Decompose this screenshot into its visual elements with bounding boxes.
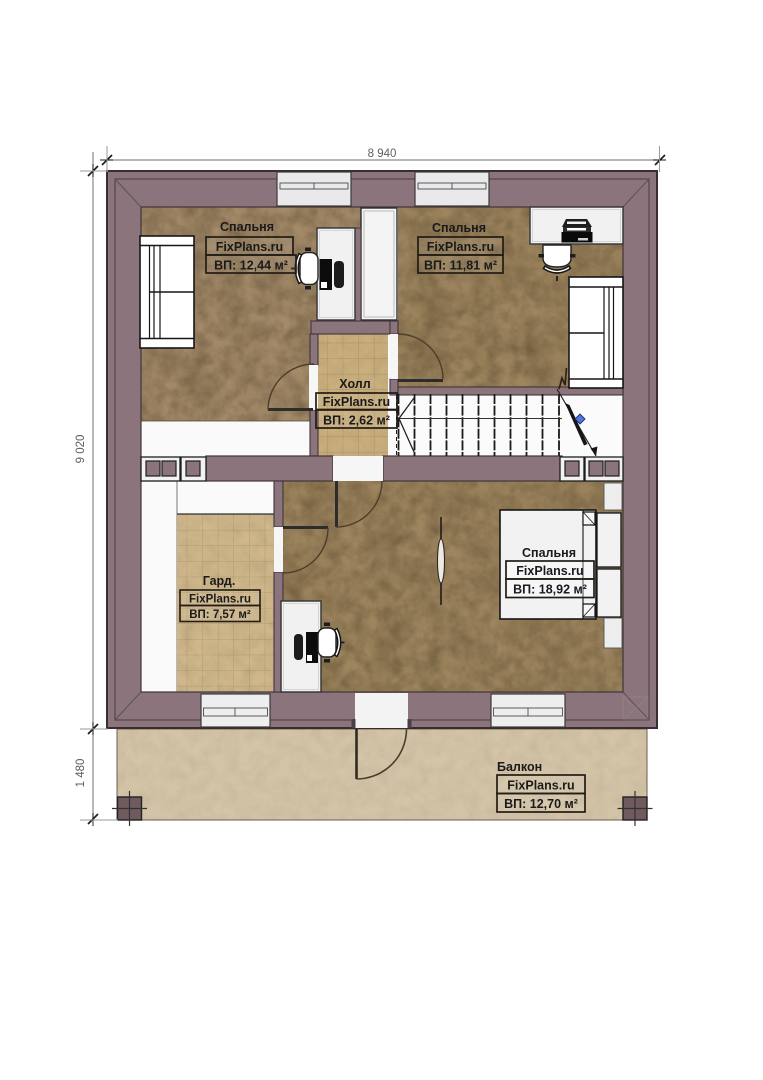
svg-text:FixPlans.ru: FixPlans.ru [516, 564, 583, 578]
svg-text:FixPlans.ru: FixPlans.ru [216, 240, 283, 254]
svg-text:ВП: 12,44 м²: ВП: 12,44 м² [214, 259, 288, 273]
svg-text:FixPlans.ru: FixPlans.ru [507, 779, 574, 793]
svg-text:ВП: 7,57 м²: ВП: 7,57 м² [189, 609, 251, 621]
svg-text:ВП: 11,81 м²: ВП: 11,81 м² [424, 259, 497, 273]
svg-text:8 940: 8 940 [368, 148, 397, 160]
svg-text:9 020: 9 020 [75, 435, 87, 464]
svg-text:ВП: 18,92 м²: ВП: 18,92 м² [513, 583, 587, 597]
svg-text:Гард.: Гард. [203, 574, 236, 588]
svg-text:FixPlans.ru: FixPlans.ru [189, 594, 251, 606]
svg-text:FixPlans.ru: FixPlans.ru [427, 240, 494, 254]
svg-text:ВП: 12,70 м²: ВП: 12,70 м² [504, 797, 578, 811]
svg-text:Спальня: Спальня [432, 221, 486, 235]
svg-text:Балкон: Балкон [497, 760, 542, 774]
svg-text:FixPlans.ru: FixPlans.ru [323, 395, 390, 409]
svg-text:Спальня: Спальня [220, 220, 274, 234]
svg-text:ВП: 2,62 м²: ВП: 2,62 м² [323, 414, 390, 428]
svg-text:Спальня: Спальня [522, 546, 576, 560]
svg-text:Холл: Холл [339, 377, 370, 391]
svg-text:1 480: 1 480 [75, 759, 87, 788]
